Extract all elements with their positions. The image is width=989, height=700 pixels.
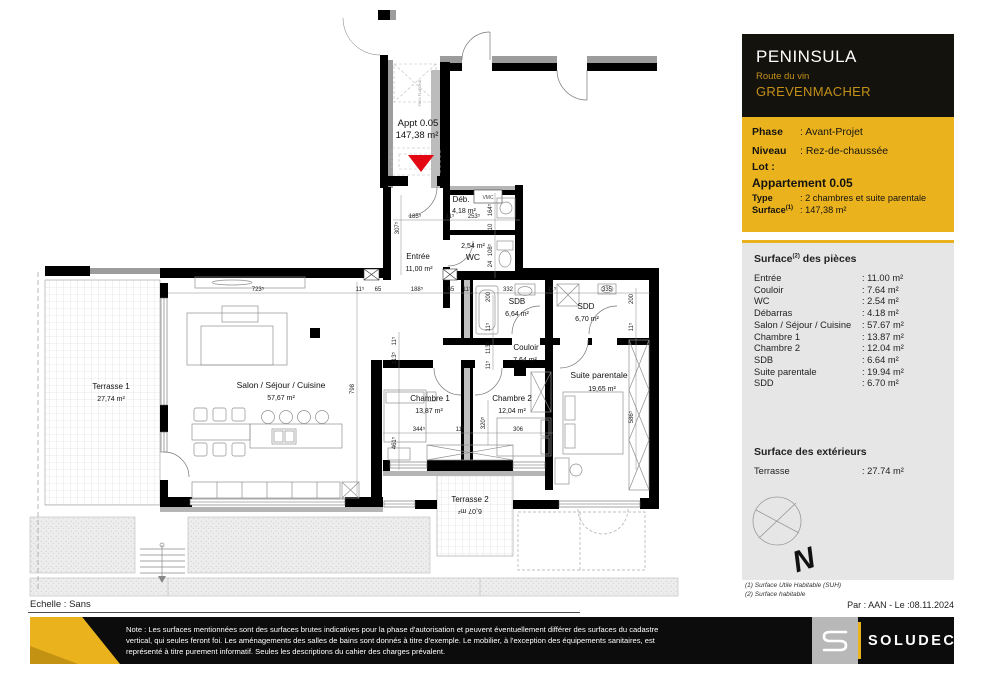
terrace-1: [45, 280, 160, 505]
room-entree-area: 11,00 m²: [405, 266, 433, 273]
svg-text:200: 200: [629, 293, 635, 304]
soludec-logo-word-box: SOLUDEC: [858, 617, 954, 664]
piece-row: Chambre 2: 12.04 m²: [754, 343, 942, 355]
exterior-stairs: [140, 543, 185, 583]
room-sdd-area: 6,70 m²: [575, 316, 599, 323]
furniture: [187, 190, 649, 498]
room-sdd-name: SDD: [578, 302, 595, 311]
svg-text:65: 65: [448, 287, 455, 293]
room-t2-name: Terrasse 2: [451, 495, 489, 504]
room-t2-area: 6,07 m²: [457, 507, 481, 514]
terrasse-row: Terrasse: 27.74 m²: [754, 466, 942, 478]
svg-text:164⁵: 164⁵: [487, 203, 494, 216]
svg-text:11⁵: 11⁵: [548, 286, 557, 293]
room-t1-name: Terrasse 1: [92, 382, 130, 391]
room-couloir-area: 7,64 m²: [513, 357, 537, 364]
project-header: PENINSULA Route du vin GREVENMACHER: [742, 34, 954, 117]
room-entree-name: Entrée: [406, 252, 430, 261]
svg-text:11⁵: 11⁵: [391, 336, 398, 345]
pieces-title: Surface(2) des pièces: [754, 253, 942, 265]
svg-text:335: 335: [602, 287, 613, 293]
frame-line: [28, 612, 580, 613]
piece-row: Débarras: 4.18 m²: [754, 308, 942, 320]
svg-text:185⁵: 185⁵: [409, 213, 422, 220]
svg-text:798: 798: [350, 383, 356, 394]
room-wc-area: 2,54 m²: [461, 243, 485, 250]
vmc-label: VMC: [482, 195, 494, 201]
svg-text:320⁵: 320⁵: [480, 416, 487, 429]
ceiling-note: FAUX PLAFOND: [418, 79, 422, 106]
niveau-row: Niveau : Rez-de-chaussée: [752, 145, 944, 158]
project-city: GREVENMACHER: [756, 84, 940, 99]
svg-text:11⁵: 11⁵: [356, 286, 365, 293]
room-couloir-name: Couloir: [513, 343, 539, 352]
svg-text:113⁵: 113⁵: [391, 351, 398, 364]
piece-row: Suite parentale: 19.94 m²: [754, 367, 942, 379]
svg-text:253⁵: 253⁵: [468, 213, 481, 220]
svg-text:11⁵: 11⁵: [446, 213, 455, 220]
room-suite-name: Suite parentale: [570, 370, 627, 380]
svg-text:108⁵: 108⁵: [487, 243, 494, 256]
room-ch1-area: 13,87 m²: [415, 408, 443, 415]
svg-text:188⁵: 188⁵: [411, 286, 424, 293]
type-row: Type : 2 chambres et suite parentale: [752, 193, 944, 205]
scale-label: Echelle : Sans: [30, 599, 91, 610]
svg-text:307⁵: 307⁵: [394, 221, 401, 234]
svg-text:113⁵: 113⁵: [485, 341, 492, 354]
s-logo-icon: [812, 617, 858, 664]
room-salon-area: 57,67 m²: [267, 395, 295, 402]
logo-accent-bar: [858, 622, 861, 659]
room-sdb-name: SDB: [509, 297, 525, 306]
svg-text:24: 24: [488, 260, 494, 267]
exteriors-title: Surface des extérieurs: [754, 446, 942, 458]
appt-area: 147,38 m²: [396, 130, 439, 141]
svg-text:10: 10: [488, 223, 494, 230]
svg-text:461⁵: 461⁵: [391, 436, 398, 449]
project-street: Route du vin: [756, 71, 940, 82]
dimension-lines: [168, 193, 650, 495]
legal-note: Note : Les surfaces mentionnées sont des…: [126, 623, 671, 657]
piece-row: SDB: 6.64 m²: [754, 355, 942, 367]
room-suite-area: 19,65 m²: [588, 386, 616, 393]
room-ch2-area: 12,04 m²: [498, 408, 526, 415]
svg-text:11⁵: 11⁵: [485, 322, 492, 331]
svg-text:11⁵: 11⁵: [485, 360, 492, 369]
room-deb-name: Déb.: [453, 195, 470, 204]
surface-row: Surface(1) : 147,38 m²: [752, 205, 944, 217]
room-ch2-name: Chambre 2: [492, 394, 532, 403]
drawing-sheet: Appt 0.05 147,38 m² FAUX PLAFOND VMC Ent…: [0, 0, 989, 700]
footnotes: (1) Surface Utile Habitable (SUH) (2) Su…: [745, 581, 841, 599]
project-name: PENINSULA: [756, 47, 940, 67]
apartment-row: Appartement 0.05: [752, 176, 944, 190]
svg-text:306: 306: [513, 427, 524, 433]
room-salon-name: Salon / Séjour / Cuisine: [237, 380, 326, 390]
piece-row: Entrée: 11.00 m²: [754, 273, 942, 285]
soludec-logo-mark: [812, 617, 858, 664]
footnote-2: (2) Surface habitable: [745, 590, 841, 599]
room-wc-name: WC: [466, 252, 480, 262]
piece-row: Couloir: 7.64 m²: [754, 285, 942, 297]
note-bar: Note : Les surfaces mentionnées sont des…: [30, 617, 812, 664]
piece-row: SDD: 6.70 m²: [754, 378, 942, 390]
north-compass: N: [746, 493, 836, 578]
surfaces-box: Surface(2) des pièces Entrée: 11.00 m² C…: [742, 240, 954, 580]
piece-row: Salon / Séjour / Cuisine: 57.67 m²: [754, 320, 942, 332]
svg-text:723⁵: 723⁵: [252, 286, 265, 293]
dimension-labels: 723⁵ 11⁵ 65 188⁵ 65 11⁵ 332 11⁵ 335 185⁵…: [252, 203, 635, 449]
svg-text:11⁵: 11⁵: [463, 286, 472, 293]
soludec-logo-text: SOLUDEC: [868, 633, 956, 649]
north-letter: N: [788, 541, 820, 578]
piece-row: Chambre 1: 13.87 m²: [754, 332, 942, 344]
svg-text:65: 65: [375, 287, 382, 293]
svg-text:332: 332: [503, 287, 514, 293]
lot-info-box: Phase : Avant-Projet Niveau : Rez-de-cha…: [742, 117, 954, 232]
room-sdb-area: 6,64 m²: [505, 311, 529, 318]
lot-row: Lot :: [752, 161, 944, 173]
phase-row: Phase : Avant-Projet: [752, 126, 944, 139]
title-block: PENINSULA Route du vin GREVENMACHER Phas…: [742, 34, 954, 580]
svg-text:200: 200: [486, 291, 492, 302]
piece-row: WC: 2.54 m²: [754, 296, 942, 308]
entrance-arrow: [408, 155, 434, 172]
appt-label: Appt 0.05: [398, 118, 439, 129]
svg-text:11⁵: 11⁵: [456, 426, 465, 433]
footnote-1: (1) Surface Utile Habitable (SUH): [745, 581, 841, 590]
author-date: Par : AAN - Le :08.11.2024: [742, 600, 954, 610]
svg-text:586⁵: 586⁵: [628, 410, 635, 423]
room-t1-area: 27,74 m²: [97, 396, 125, 403]
room-ch1-name: Chambre 1: [410, 394, 450, 403]
svg-text:344⁵: 344⁵: [413, 426, 426, 433]
svg-text:11⁵: 11⁵: [628, 322, 635, 331]
